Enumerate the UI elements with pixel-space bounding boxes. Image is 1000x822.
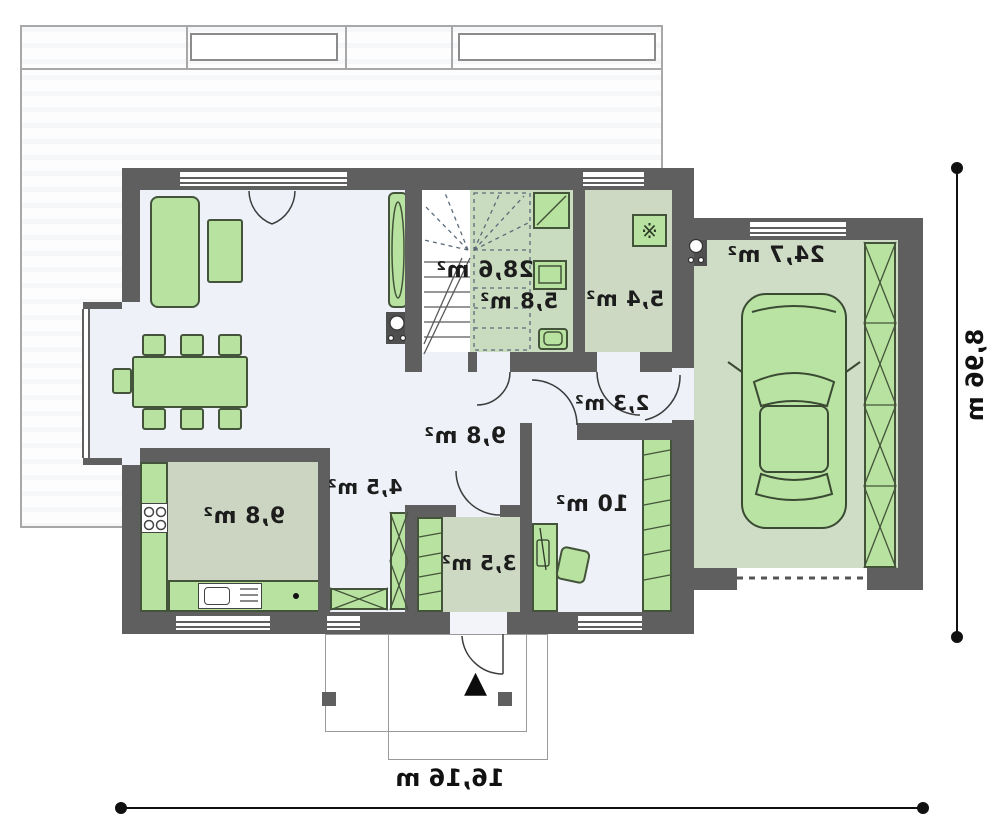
room-label-hall-small: 2,3 m² xyxy=(552,391,672,415)
room-label-office: 10 m² xyxy=(532,492,652,517)
wall-office-left xyxy=(520,423,532,612)
wall-left-lower xyxy=(122,465,140,634)
window-small-bottom xyxy=(327,614,360,632)
room-label-utility: 5,4 m² xyxy=(565,287,685,311)
office-wardrobe xyxy=(642,430,672,612)
room-label-hall: 9,8 m² xyxy=(405,424,525,449)
window-garage-top xyxy=(750,220,846,238)
skylight-1 xyxy=(190,33,338,61)
wall-wardrobe-vestibule xyxy=(405,505,417,612)
window-kitchen-bottom xyxy=(176,614,270,632)
entrance-arrow-icon: ▲ xyxy=(464,668,487,698)
terrace-divider-2 xyxy=(345,25,347,70)
dimension-width-label: 16,16 m xyxy=(370,764,530,792)
boiler: ※ xyxy=(632,214,667,247)
wall-office-top xyxy=(577,423,672,440)
wall-kitchen-wardrobe xyxy=(318,448,330,612)
terrace-pergola-line xyxy=(20,68,663,70)
terrace-divider-3 xyxy=(451,25,453,70)
garage-door-gap xyxy=(737,568,867,590)
dining-chair xyxy=(142,334,166,356)
dining-table xyxy=(132,356,248,408)
room-label-vestibule: 3,5 m² xyxy=(419,551,539,575)
toilet xyxy=(538,328,568,350)
dining-chair xyxy=(180,334,204,356)
entrance-door-gap xyxy=(450,612,507,634)
room-label-wardrobe: 4,5 m² xyxy=(305,475,425,499)
bay-stub-top xyxy=(83,302,122,309)
dining-chair xyxy=(218,334,242,356)
window-office-bottom xyxy=(578,614,642,632)
wall-vestibule-top-1 xyxy=(417,505,456,517)
porch-post-left xyxy=(322,692,336,706)
wall-garage-right xyxy=(898,218,923,590)
bay-stub-bottom xyxy=(83,458,122,465)
shower xyxy=(533,192,570,229)
boiler-icon: ※ xyxy=(634,216,665,245)
coffee-table xyxy=(207,219,243,283)
kitchen-sink-basin xyxy=(204,587,230,605)
wall-left-upper xyxy=(122,168,140,302)
room-label-kitchen: 9,8 m² xyxy=(184,504,304,529)
room-label-garage: 24,7 m² xyxy=(706,243,846,268)
bay-window-glazing xyxy=(82,309,90,458)
porch-post-right xyxy=(498,692,512,706)
wall-hall-seg-2 xyxy=(510,352,597,372)
cooktop xyxy=(141,503,168,533)
garage-storage-rack xyxy=(864,242,896,568)
kitchen-counter-left xyxy=(140,462,168,612)
dining-chair xyxy=(142,408,166,430)
wall-kitchen-top xyxy=(140,448,320,462)
floor-plan: ▲ ※ xyxy=(0,0,1000,822)
sofa xyxy=(150,196,200,308)
wall-bath-utility xyxy=(573,190,585,352)
dining-chair xyxy=(112,368,132,394)
wall-vestibule-top-2 xyxy=(500,505,520,517)
window-living-top xyxy=(180,170,347,188)
terrace-divider-1 xyxy=(186,25,188,70)
dimension-height-label: 8,96 m xyxy=(961,315,989,435)
room-label-bath: 5,8 m² xyxy=(457,289,581,313)
skylight-2 xyxy=(458,33,656,61)
wardrobe-low xyxy=(330,588,388,610)
wall-hall-seg-3 xyxy=(640,352,672,372)
garage-side-door-gap xyxy=(672,368,694,420)
room-label-living: 28,6 m² xyxy=(405,258,565,283)
dining-chair xyxy=(180,408,204,430)
wall-hall-seg-1 xyxy=(468,352,477,372)
window-utility-top xyxy=(583,170,644,188)
dining-chair xyxy=(218,408,242,430)
